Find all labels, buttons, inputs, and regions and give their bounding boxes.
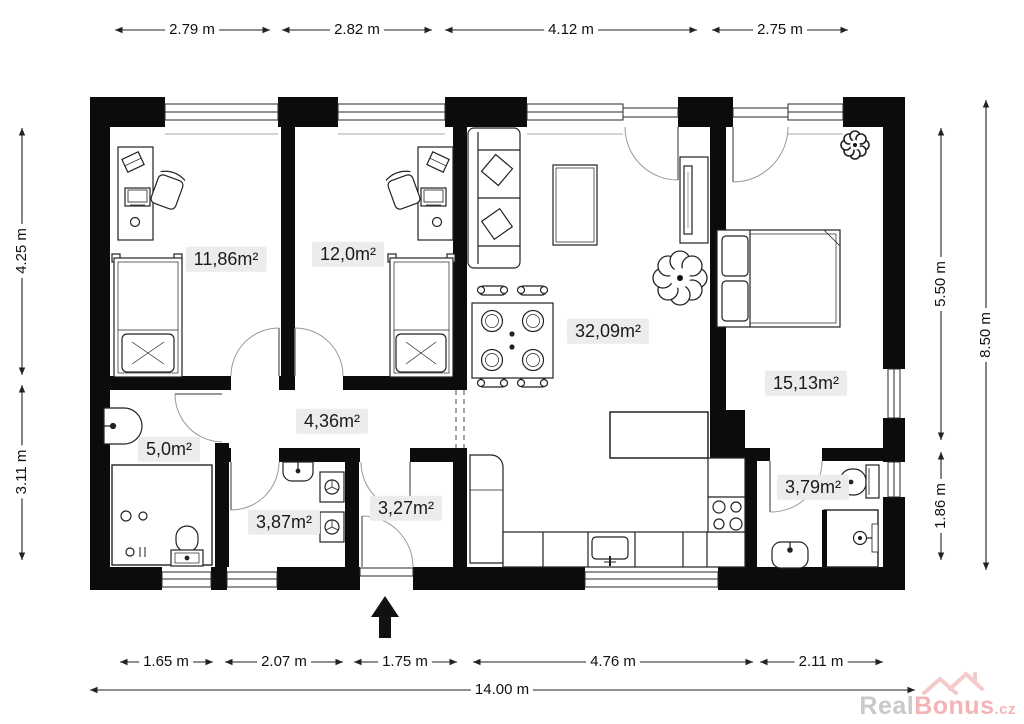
door-utility-room xyxy=(231,462,279,510)
window-bottom-2 xyxy=(227,572,277,587)
plant-bedroom-icon xyxy=(841,131,869,159)
dim-top-4: 2.75 m xyxy=(753,22,807,39)
room-label-bathroom-1: 5,0m² xyxy=(138,437,200,462)
shower-bathroom-2 xyxy=(822,510,878,567)
passage-dashed xyxy=(456,390,464,448)
dim-top-1: 2.79 m xyxy=(165,22,219,39)
dim-bottom-3: 1.75 m xyxy=(378,654,432,671)
sink-bathroom-2 xyxy=(772,542,808,568)
window-bottom-1 xyxy=(162,572,211,587)
watermark-text: RealBonus.cz xyxy=(859,692,1016,721)
dim-top-2: 2.82 m xyxy=(330,22,384,39)
desk-bedroom-1 xyxy=(118,147,153,240)
sofa xyxy=(468,128,520,268)
dim-total-width: 14.00 m xyxy=(471,682,533,699)
dim-top-3: 4.12 m xyxy=(544,22,598,39)
door-bedroom-1 xyxy=(231,328,279,376)
bed-bedroom-2 xyxy=(388,254,455,377)
dim-right-2: 8.50 m xyxy=(978,308,995,362)
dim-bottom-4: 4.76 m xyxy=(586,654,640,671)
dim-right-3: 1.86 m xyxy=(933,479,950,533)
room-label-hallway: 4,36m² xyxy=(296,409,368,434)
watermark-real: Real xyxy=(859,692,914,720)
window-top-1 xyxy=(165,104,278,120)
sink-bathroom-1 xyxy=(104,408,142,444)
floor-plan-canvas: 2.79 m 2.82 m 4.12 m 2.75 m 4.25 m 3.11 … xyxy=(0,0,1024,724)
room-label-bedroom-1: 11,86m² xyxy=(186,247,267,272)
kitchen-counter xyxy=(503,458,745,567)
room-label-bedroom-3: 15,13m² xyxy=(765,371,847,396)
room-label-living-room: 32,09m² xyxy=(567,319,649,344)
window-right-2 xyxy=(888,462,900,497)
floor-plan-drawing xyxy=(0,0,1024,724)
door-entrance xyxy=(360,516,413,576)
fridge xyxy=(470,455,503,563)
kitchen-island xyxy=(610,412,708,458)
watermark: RealBonus.cz xyxy=(866,681,1016,721)
washer-1 xyxy=(320,472,344,502)
dining-set xyxy=(472,286,553,387)
window-top-2 xyxy=(338,104,445,120)
chair-bedroom-1 xyxy=(150,168,187,210)
dim-right-1: 5.50 m xyxy=(933,257,950,311)
washer-2 xyxy=(320,512,344,542)
room-label-bathroom-2: 3,79m² xyxy=(777,475,849,500)
dim-bottom-1: 1.65 m xyxy=(139,654,193,671)
window-right-1 xyxy=(888,369,900,418)
dim-bottom-2: 2.07 m xyxy=(257,654,311,671)
bed-bedroom-1 xyxy=(112,254,182,377)
kitchen-sink xyxy=(592,537,628,559)
door-bathroom-1 xyxy=(175,394,222,442)
sink-utility xyxy=(283,462,313,481)
dim-left-1: 4.25 m xyxy=(14,224,31,278)
dim-left-2: 3.11 m xyxy=(14,446,31,499)
room-label-entry: 3,27m² xyxy=(370,496,442,521)
watermark-tld: .cz xyxy=(994,701,1016,718)
window-top-3 xyxy=(527,104,623,120)
room-label-bedroom-2: 12,0m² xyxy=(312,242,384,267)
room-label-utility-room: 3,87m² xyxy=(248,510,320,535)
terrace-door-bedroom xyxy=(733,108,788,182)
dim-bottom-5: 2.11 m xyxy=(795,654,848,671)
bed-bedroom-3 xyxy=(717,230,840,327)
window-top-4 xyxy=(788,104,843,120)
tv-unit xyxy=(680,157,708,243)
window-bottom-3 xyxy=(585,572,718,587)
terrace-door-living xyxy=(623,108,678,180)
door-bedroom-2 xyxy=(295,328,343,376)
coffee-table xyxy=(553,165,597,245)
desk-bedroom-2 xyxy=(418,147,453,240)
entrance-arrow-icon xyxy=(371,596,399,638)
chair-bedroom-2 xyxy=(385,168,422,210)
plant-living-icon xyxy=(653,251,707,305)
watermark-bonus: Bonus xyxy=(914,692,994,720)
